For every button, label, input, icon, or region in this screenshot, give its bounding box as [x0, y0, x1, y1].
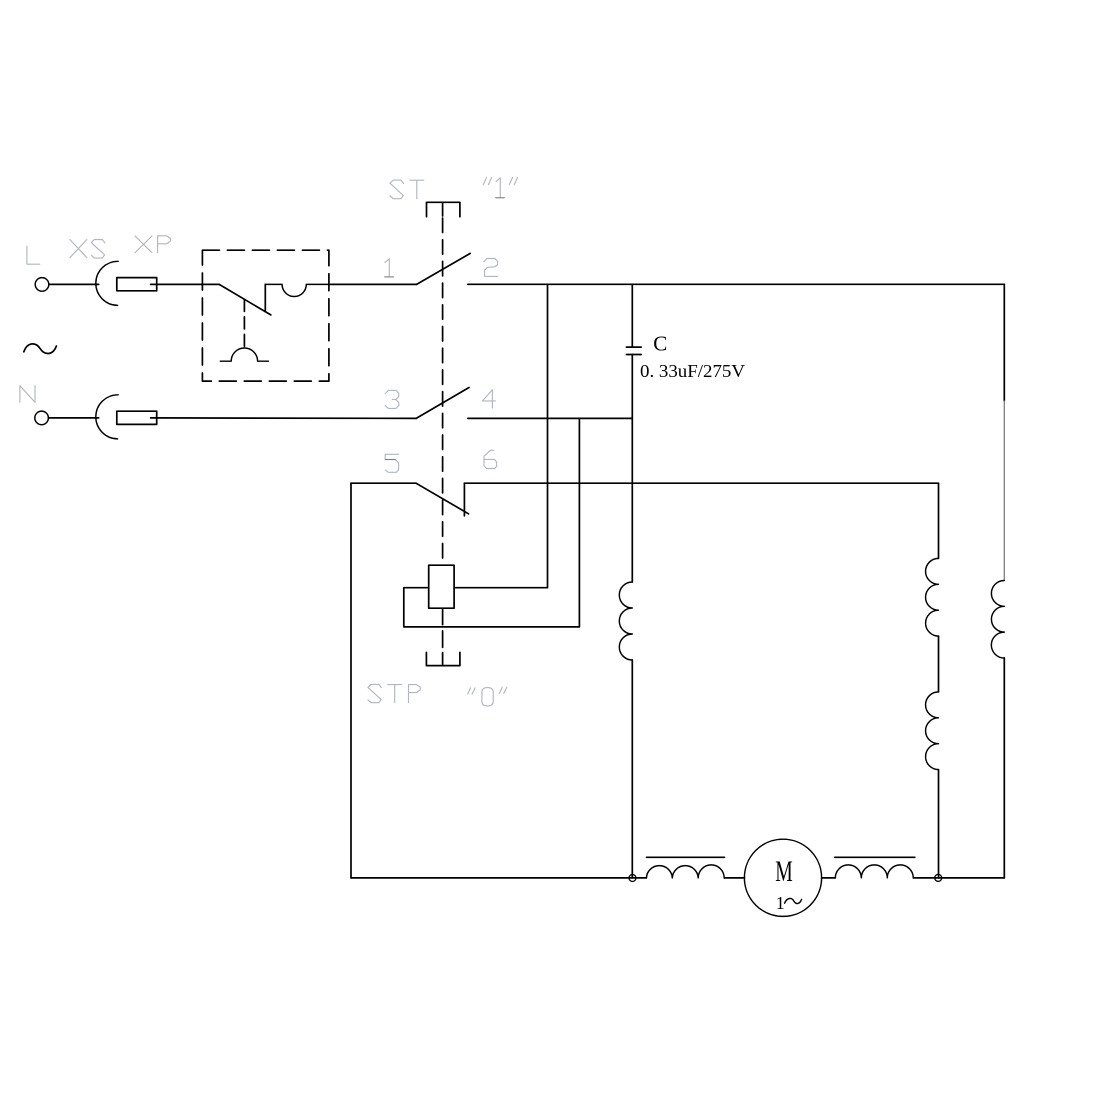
svg-text:C: C [653, 332, 667, 356]
svg-text:1: 1 [776, 893, 785, 913]
svg-text:M: M [775, 856, 793, 888]
svg-text:0. 33uF/275V: 0. 33uF/275V [640, 361, 745, 381]
